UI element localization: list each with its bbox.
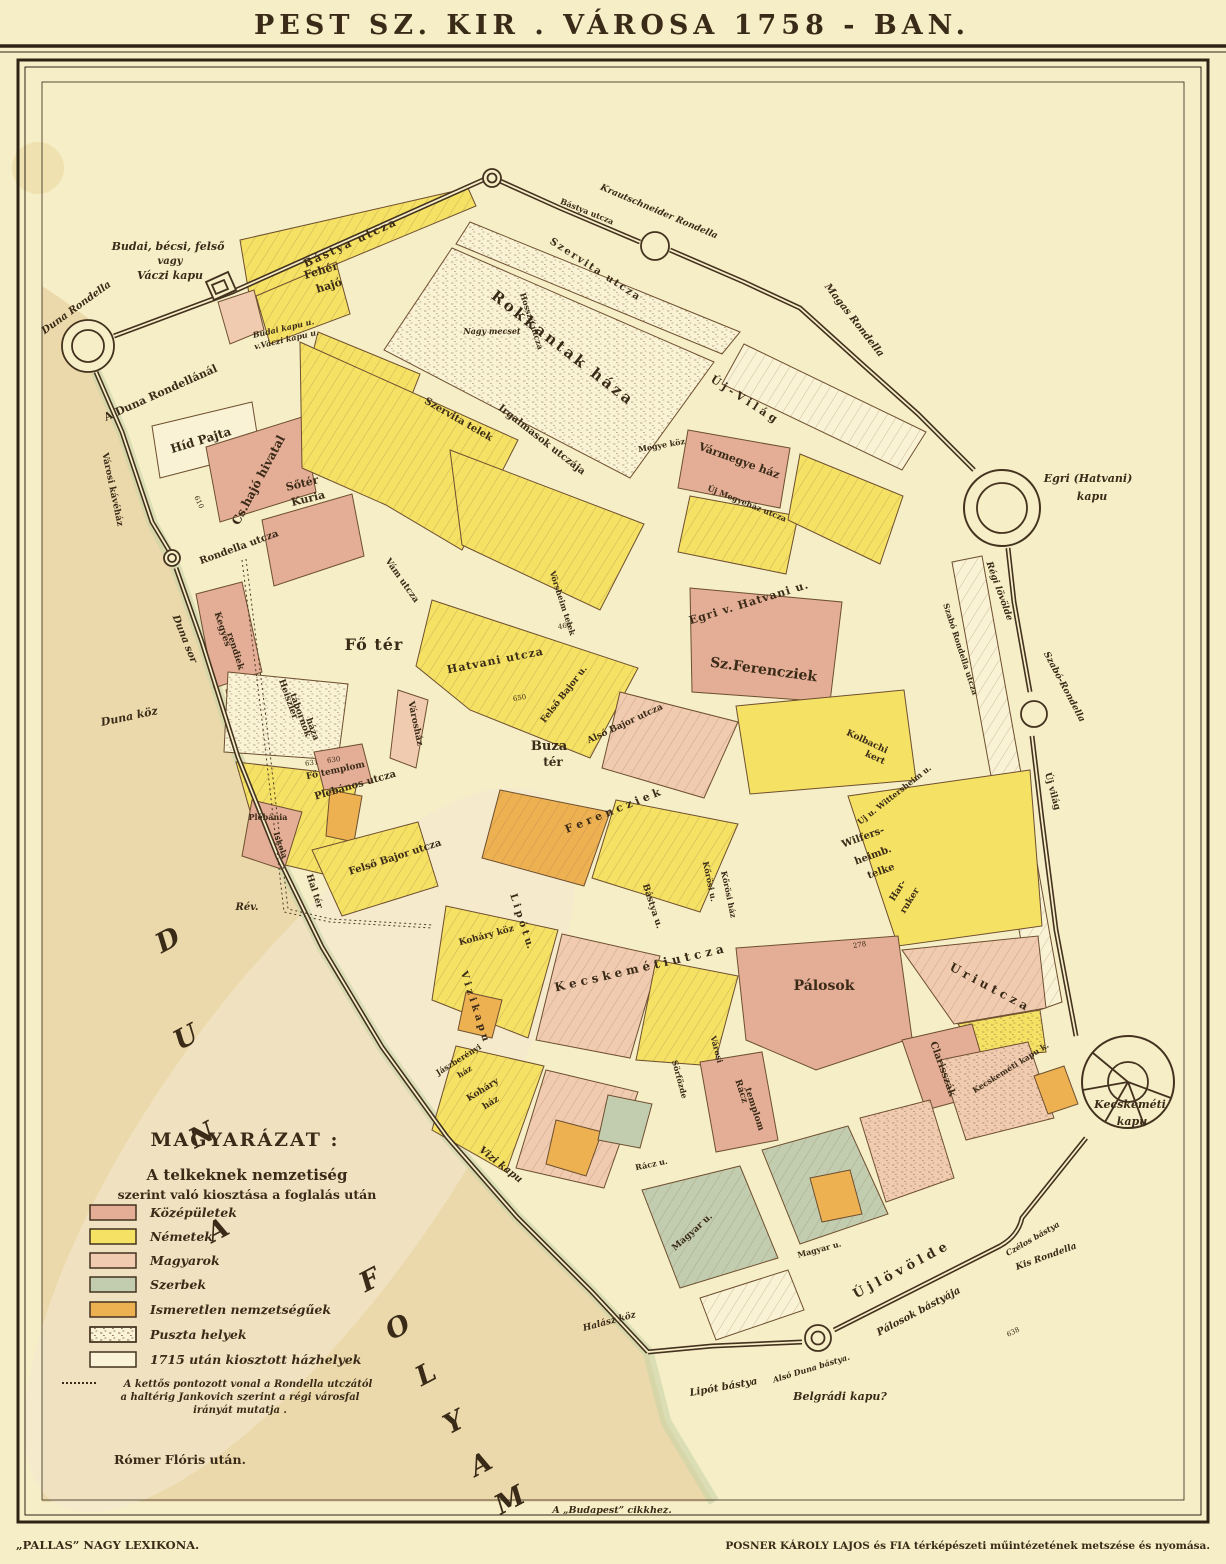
duna-rondella-circle-inner — [72, 330, 104, 362]
map-label: Budai, bécsi, felső — [111, 240, 225, 253]
szabo-rondella-circle — [1021, 701, 1047, 727]
map-label: Pálosok — [794, 978, 855, 994]
parcel-block — [736, 936, 912, 1070]
map-label: Plébánia — [249, 812, 288, 822]
map-label: Egri (Hatvani) — [1043, 472, 1133, 485]
legend-swatch-szerbek — [90, 1277, 136, 1292]
parcel-block — [598, 1095, 652, 1148]
legend-swatch-kozepuletek — [90, 1205, 136, 1220]
pest-1758-map: Budai, bécsi, felsővagyVáczi kapuDuna Ro… — [0, 0, 1226, 1564]
legend-label: 1715 után kiosztott házhelyek — [150, 1352, 362, 1367]
parcel-block — [690, 588, 842, 702]
parcel-number: 631 — [305, 758, 319, 768]
parcel-block-hatch — [450, 450, 644, 610]
parcel-number: 638 — [1005, 1326, 1021, 1339]
title-rule — [0, 46, 1226, 52]
shore-tower-inner — [168, 554, 176, 562]
map-label: Alsó Duna bástya. — [770, 1352, 851, 1385]
legend-label: Középületek — [149, 1205, 237, 1220]
paper-stain — [12, 142, 64, 194]
map-label: Magas Rondella — [821, 281, 886, 359]
map-label: kapu — [1117, 1115, 1147, 1128]
palosok-bastya-tower-inner — [812, 1332, 825, 1345]
parcel-block-hatch — [700, 1270, 804, 1340]
map-label: Szabó-Rondella — [1041, 650, 1087, 724]
legend-title: MAGYARÁZAT : — [151, 1128, 340, 1151]
map-label: Fő tér — [345, 635, 404, 654]
parcel-number: 610 — [192, 494, 205, 510]
legend-label: Szerbek — [150, 1277, 206, 1292]
map-label: Kőrösi ház — [719, 870, 739, 919]
parcel-block — [736, 690, 916, 794]
egri-gate-circle-inner — [977, 483, 1027, 533]
map-label: Kecskeméti — [1093, 1098, 1166, 1111]
parcel-block-hatch — [602, 692, 738, 798]
krautschneider-rondella-circle — [641, 232, 669, 260]
map-label: tér — [543, 755, 563, 769]
legend-note-line: A kettős pontozott vonal a Rondella utcz… — [123, 1379, 373, 1390]
map-label: Buza — [531, 739, 568, 754]
map-label: Sörfőzde — [670, 1059, 690, 1100]
legend-swatch-nemetek — [90, 1229, 136, 1244]
legend-label: Puszta helyek — [149, 1327, 247, 1342]
legend-note-line: irányát mutatja . — [193, 1405, 287, 1416]
map-sheet: Budai, bécsi, felsővagyVáczi kapuDuna Ro… — [0, 0, 1226, 1564]
map-label: Belgrádi kapu? — [792, 1390, 887, 1403]
legend-label: Németek — [149, 1229, 213, 1244]
map-label: Vám utcza — [382, 555, 421, 605]
map-label: kapu — [1077, 490, 1107, 503]
map-label: Nagy mecset — [462, 326, 521, 336]
map-label: Rácz u. — [634, 1156, 668, 1173]
legend-swatch-puszta-hatch — [90, 1327, 136, 1342]
bottom-note: A „Budapest” cikkhez. — [551, 1505, 671, 1516]
legend-swatch-ismeretlen — [90, 1302, 136, 1317]
parcel-block — [262, 494, 364, 586]
map-label: Ú j l ö v ö l d e — [850, 1238, 950, 1302]
legend-swatch-1715 — [90, 1352, 136, 1367]
map-label: Pálosok bástyája — [874, 1285, 962, 1339]
legend-label: Ismeretlen nemzetségűek — [149, 1302, 331, 1317]
parcel-block — [700, 1052, 778, 1152]
north-corner-tower-inner — [488, 174, 497, 183]
legend-subtitle-2: szerint való kiosztása a foglalás után — [118, 1187, 377, 1202]
map-label: vagy — [157, 256, 183, 267]
credit-left: „PALLAS” NAGY LEXIKONA. — [16, 1538, 199, 1552]
map-label: Váczi kapu — [137, 269, 203, 282]
map-label: Rév. — [235, 902, 259, 913]
attribution: Rómer Flóris után. — [114, 1452, 246, 1467]
parcel-block-hatch — [642, 1166, 778, 1288]
map-title: PEST SZ. KIR . VÁROSA 1758 - BAN. — [254, 8, 970, 41]
legend-label: Magyarok — [149, 1253, 220, 1268]
map-label: Új világ — [1042, 771, 1064, 812]
map-label: Lipót bástya — [688, 1376, 758, 1399]
credit-right: POSNER KÁROLY LAJOS és FIA térképészeti … — [725, 1538, 1210, 1552]
legend-swatch-magyarok — [90, 1253, 136, 1268]
legend-note-line: a haltérig Jankovich szerint a régi váro… — [121, 1392, 360, 1403]
legend-subtitle-1: A telkeknek nemzetiség — [146, 1166, 348, 1184]
